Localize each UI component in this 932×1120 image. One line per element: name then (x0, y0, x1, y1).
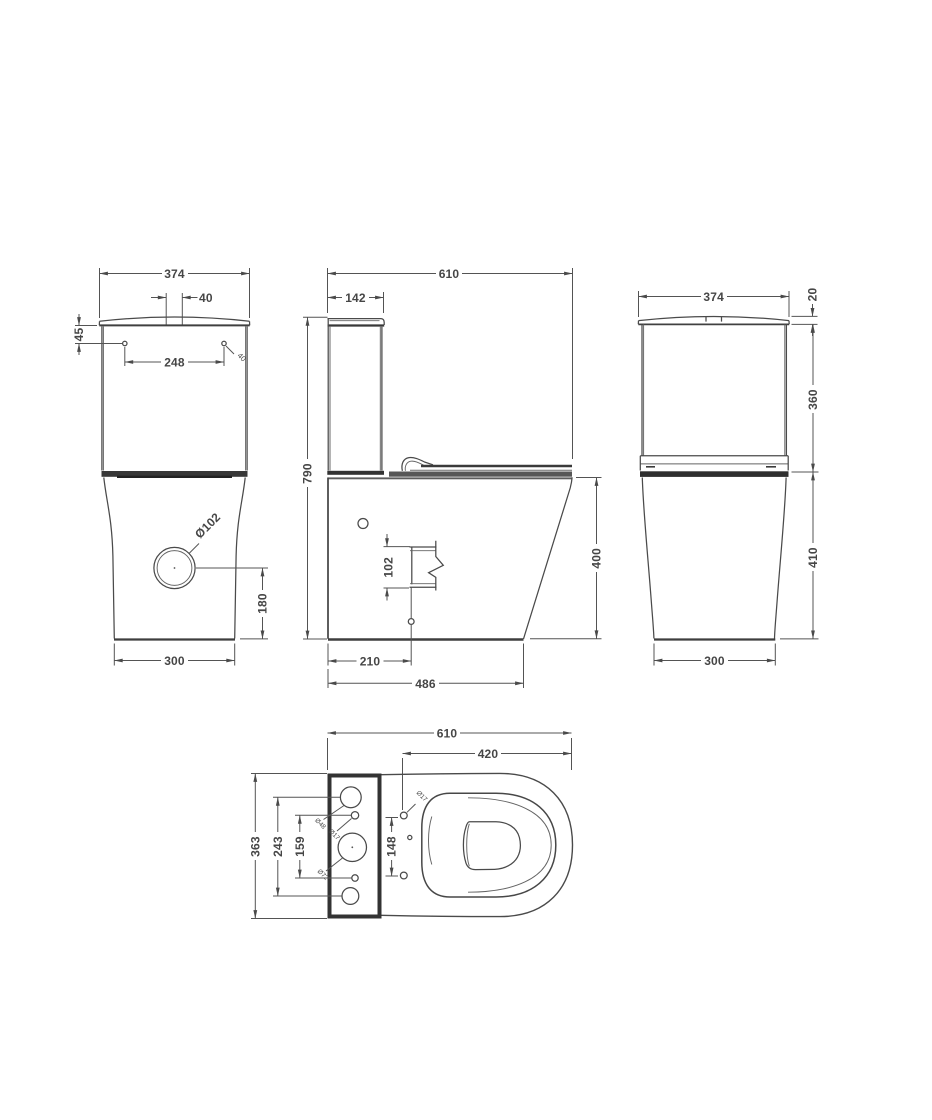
svg-text:40: 40 (199, 291, 213, 305)
svg-text:363: 363 (248, 836, 262, 857)
svg-text:102: 102 (382, 557, 396, 578)
svg-text:159: 159 (293, 836, 307, 857)
svg-text:610: 610 (437, 727, 458, 741)
svg-text:486: 486 (415, 677, 436, 691)
svg-text:420: 420 (478, 747, 499, 761)
svg-text:360: 360 (806, 389, 820, 410)
svg-text:374: 374 (703, 290, 724, 304)
svg-text:45: 45 (72, 328, 86, 342)
svg-text:790: 790 (301, 463, 315, 484)
svg-text:300: 300 (704, 654, 725, 668)
svg-text:374: 374 (164, 267, 185, 281)
svg-text:410: 410 (806, 547, 820, 568)
svg-text:300: 300 (164, 654, 185, 668)
svg-text:400: 400 (590, 548, 604, 569)
svg-text:210: 210 (360, 655, 381, 669)
svg-text:148: 148 (385, 836, 399, 857)
svg-text:248: 248 (164, 356, 185, 370)
svg-text:180: 180 (256, 593, 270, 614)
svg-text:20: 20 (806, 288, 820, 302)
svg-text:610: 610 (439, 267, 460, 281)
svg-text:243: 243 (271, 836, 285, 857)
svg-text:142: 142 (345, 291, 366, 305)
